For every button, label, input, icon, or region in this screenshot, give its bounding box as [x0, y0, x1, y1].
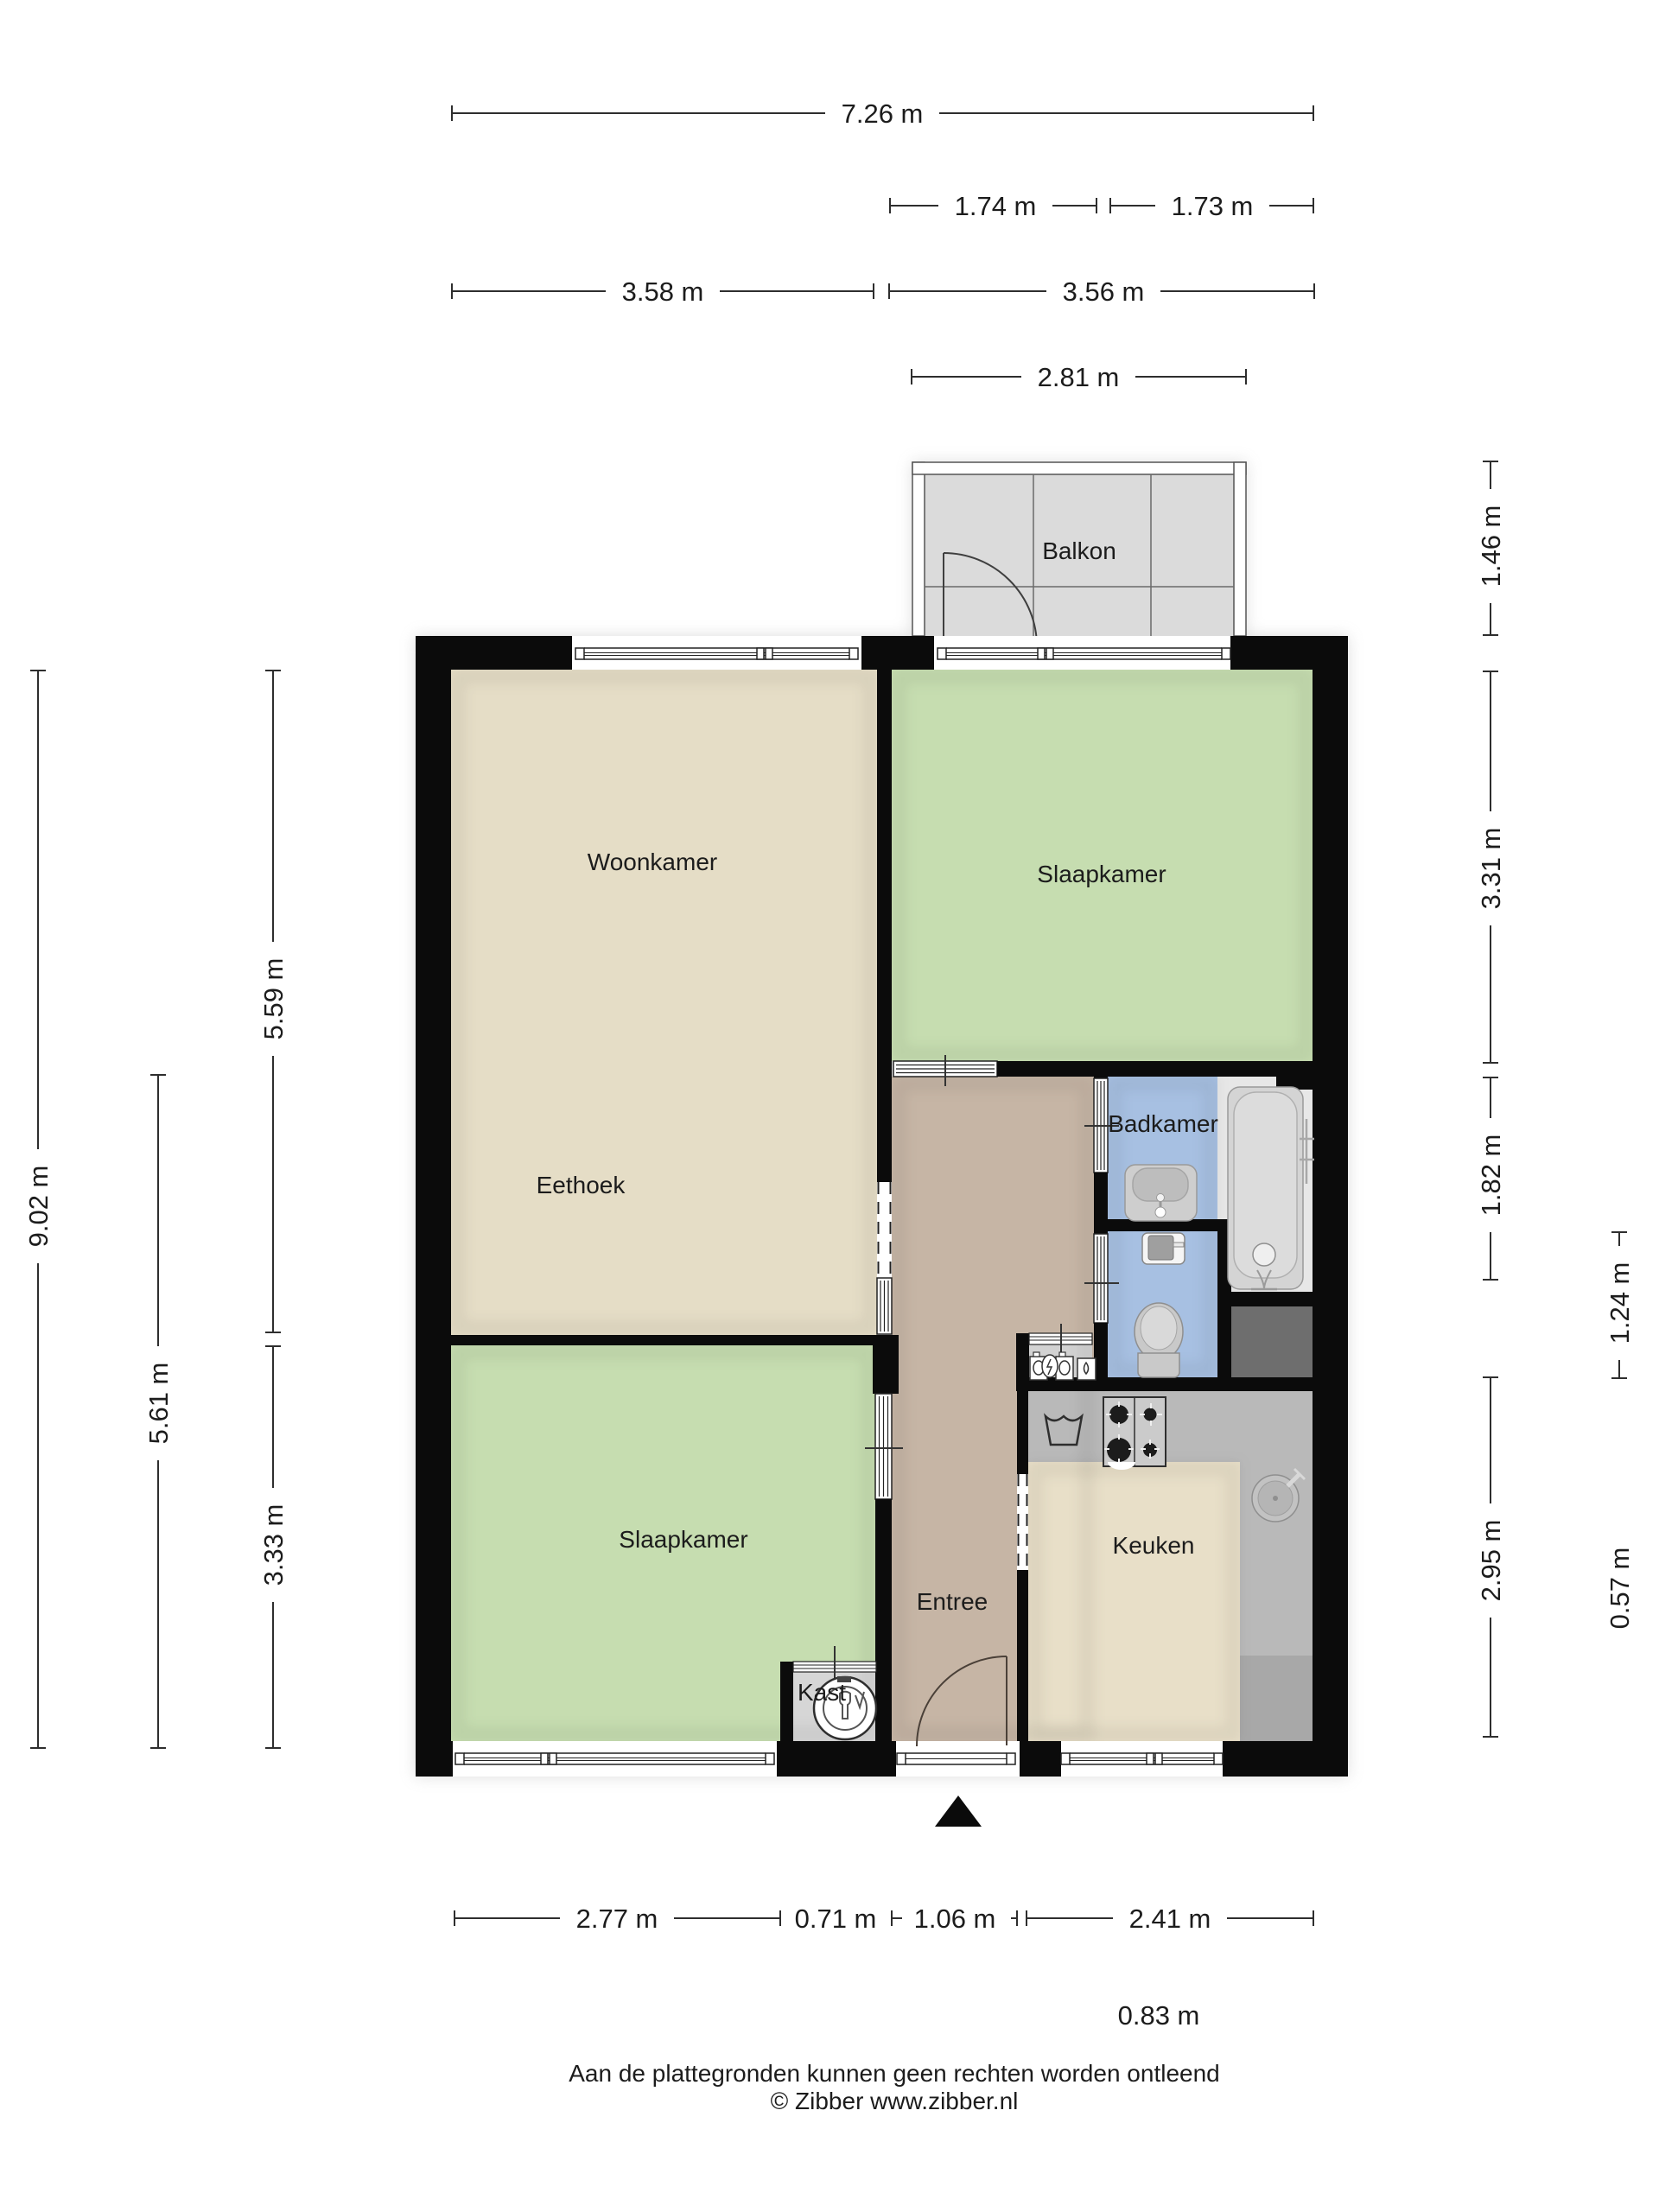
svg-text:Slaapkamer: Slaapkamer [619, 1526, 747, 1553]
svg-text:0.57 m: 0.57 m [1605, 1548, 1635, 1630]
svg-text:3.33 m: 3.33 m [258, 1504, 289, 1586]
svg-text:1.73 m: 1.73 m [1172, 191, 1254, 221]
svg-text:9.02 m: 9.02 m [23, 1166, 54, 1248]
svg-text:2.41 m: 2.41 m [1129, 1904, 1211, 1934]
svg-text:3.56 m: 3.56 m [1063, 276, 1145, 307]
svg-text:3.31 m: 3.31 m [1476, 828, 1506, 910]
svg-text:Eethoek: Eethoek [537, 1172, 626, 1198]
svg-text:5.59 m: 5.59 m [258, 958, 289, 1040]
svg-text:1.74 m: 1.74 m [955, 191, 1037, 221]
svg-text:1.82 m: 1.82 m [1476, 1135, 1506, 1217]
svg-text:Slaapkamer: Slaapkamer [1037, 861, 1166, 887]
svg-text:1.06 m: 1.06 m [914, 1904, 996, 1934]
svg-text:Badkamer: Badkamer [1108, 1110, 1218, 1137]
svg-text:Aan de plattegronden kunnen ge: Aan de plattegronden kunnen geen rechten… [569, 2060, 1219, 2087]
svg-text:2.81 m: 2.81 m [1038, 362, 1120, 392]
svg-text:Balkon: Balkon [1042, 537, 1116, 564]
svg-text:2.95 m: 2.95 m [1476, 1520, 1506, 1602]
svg-text:3.58 m: 3.58 m [622, 276, 704, 307]
svg-text:5.61 m: 5.61 m [143, 1363, 174, 1445]
svg-text:0.71 m: 0.71 m [795, 1904, 877, 1934]
svg-text:1.24 m: 1.24 m [1605, 1262, 1635, 1344]
svg-text:0.83 m: 0.83 m [1118, 2000, 1200, 2031]
svg-text:Kast: Kast [798, 1679, 846, 1706]
svg-text:Entree: Entree [917, 1588, 988, 1615]
svg-text:7.26 m: 7.26 m [842, 99, 924, 129]
svg-text:1.46 m: 1.46 m [1476, 505, 1506, 588]
svg-text:2.77 m: 2.77 m [576, 1904, 658, 1934]
svg-text:Woonkamer: Woonkamer [588, 849, 717, 875]
svg-text:© Zibber www.zibber.nl: © Zibber www.zibber.nl [771, 2088, 1019, 2114]
svg-text:Keuken: Keuken [1113, 1532, 1195, 1559]
